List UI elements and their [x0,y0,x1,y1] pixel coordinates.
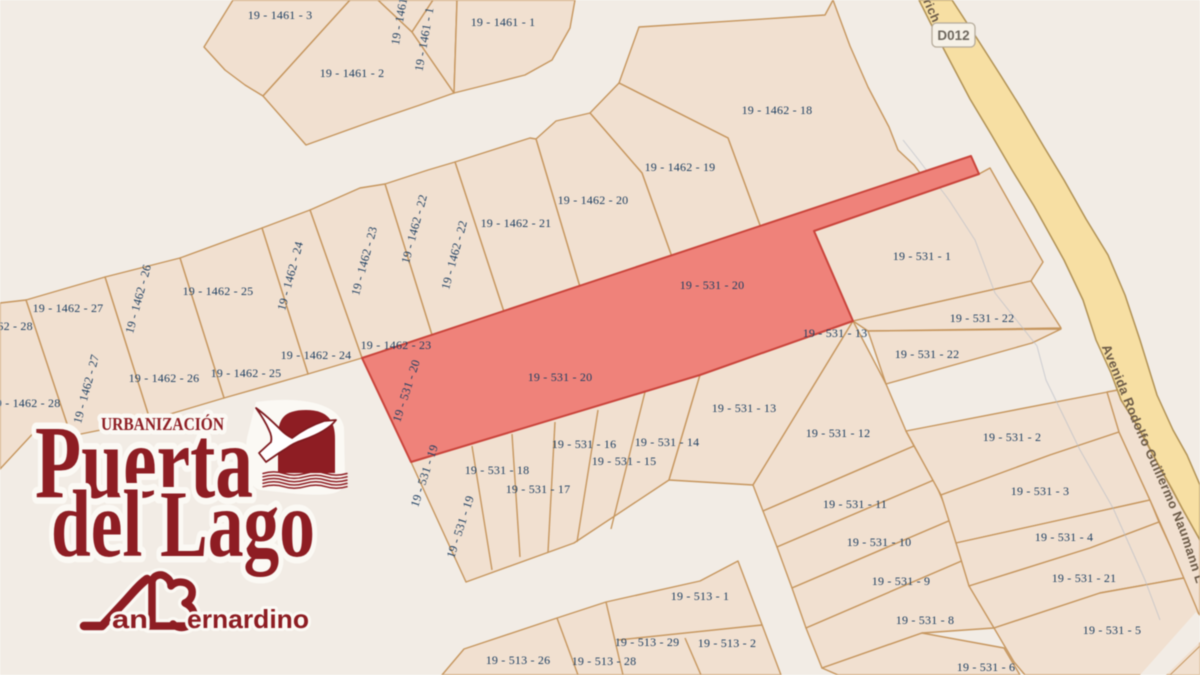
svg-text:D012: D012 [937,28,969,43]
svg-text:19 - 531 - 1: 19 - 531 - 1 [893,249,951,263]
svg-text:19 - 531 - 8: 19 - 531 - 8 [896,613,954,627]
svg-text:19 - 1462 - 20: 19 - 1462 - 20 [558,193,629,207]
svg-text:19 - 531 - 14: 19 - 531 - 14 [635,435,700,449]
svg-text:19 - 513 - 2: 19 - 513 - 2 [698,636,756,650]
svg-text:ernardino: ernardino [187,604,309,634]
svg-text:19 - 531 - 9: 19 - 531 - 9 [872,574,930,588]
svg-text:19 - 531 - 20: 19 - 531 - 20 [528,370,593,384]
svg-text:19 - 1462 - 25: 19 - 1462 - 25 [211,366,282,380]
svg-text:462 - 28: 462 - 28 [0,319,33,333]
svg-text:19 - 1462 - 23: 19 - 1462 - 23 [361,338,432,352]
svg-text:19 - 1462 - 18: 19 - 1462 - 18 [742,103,813,117]
svg-text:19 - 531 - 20: 19 - 531 - 20 [680,278,745,292]
svg-text:19 - 513 - 1: 19 - 513 - 1 [671,589,729,603]
svg-text:19 - 1461 - 2: 19 - 1461 - 2 [320,66,385,80]
svg-text:19 - 531 - 16: 19 - 531 - 16 [552,437,617,451]
svg-text:19 - 1462 - 27: 19 - 1462 - 27 [33,301,104,315]
svg-text:19 - 1461 - 3: 19 - 1461 - 3 [248,8,313,22]
svg-text:19 - 1462 - 25: 19 - 1462 - 25 [183,284,254,298]
svg-text:19 - 531 - 22: 19 - 531 - 22 [895,347,960,361]
svg-text:19 - 1462 - 26: 19 - 1462 - 26 [129,371,200,385]
svg-text:19 - 531 - 22: 19 - 531 - 22 [950,311,1015,325]
svg-text:19 - 531 - 15: 19 - 531 - 15 [592,454,657,468]
svg-text:19 - 513 - 26: 19 - 513 - 26 [486,653,551,667]
svg-text:19 - 531 - 5: 19 - 531 - 5 [1083,623,1141,637]
svg-text:19 - 531 - 13: 19 - 531 - 13 [803,326,868,340]
svg-text:19 - 531 - 17: 19 - 531 - 17 [506,482,571,496]
svg-text:19 - 1462 - 19: 19 - 1462 - 19 [645,160,716,174]
svg-text:19 - 1461 - 1: 19 - 1461 - 1 [471,15,536,29]
svg-text:19 - 531 - 3: 19 - 531 - 3 [1011,484,1069,498]
svg-text:19 - 531 - 12: 19 - 531 - 12 [806,426,871,440]
svg-text:19 - 513 - 28: 19 - 513 - 28 [572,654,637,668]
svg-text:19 - 531 - 13: 19 - 531 - 13 [712,401,777,415]
svg-text:19 - 1462 - 24: 19 - 1462 - 24 [281,348,352,362]
svg-text:19 - 513 - 29: 19 - 513 - 29 [615,635,680,649]
svg-text:an: an [112,604,148,634]
svg-text:19 - 531 - 11: 19 - 531 - 11 [823,497,887,511]
svg-text:19 - 531 - 10: 19 - 531 - 10 [847,535,912,549]
svg-text:19 - 531 - 6: 19 - 531 - 6 [957,660,1015,674]
svg-text:19 - 531 - 18: 19 - 531 - 18 [465,463,530,477]
svg-text:19 - 531 - 2: 19 - 531 - 2 [983,430,1041,444]
svg-text:19 - 531 - 4: 19 - 531 - 4 [1035,530,1093,544]
svg-text:del Lago: del Lago [51,471,315,577]
svg-text:19 - 531 - 21: 19 - 531 - 21 [1052,571,1117,585]
svg-text:19 - 1462 - 21: 19 - 1462 - 21 [481,216,552,230]
